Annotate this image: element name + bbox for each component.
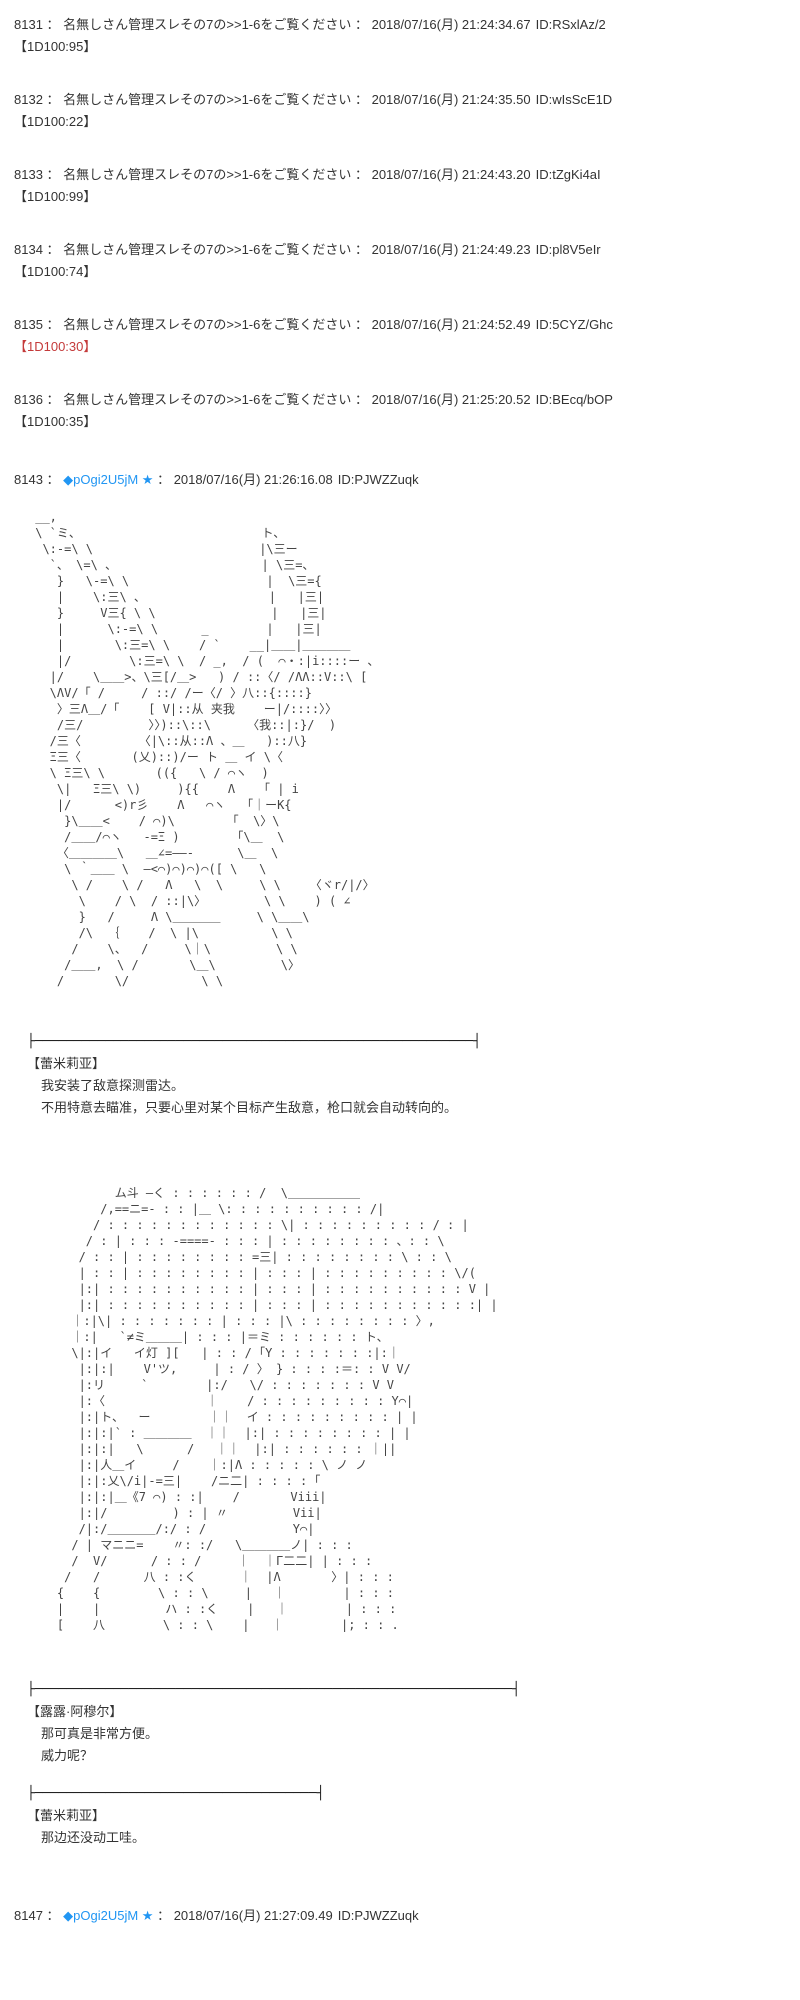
post-date: 2018/07/16(月) 21:26:16.08 (174, 472, 333, 487)
dice-roll: 【1D100:95】 (14, 36, 790, 58)
separator: ： (43, 1908, 63, 1923)
post-number: 8143 (14, 472, 43, 487)
post-8143: 8143 ： ◆pOgi2U5jM ★ ： 2018/07/16(月) 21:2… (14, 469, 790, 491)
poster-name: 名無しさん管理スレその7の>>1-6をご覧ください (63, 17, 351, 32)
poster-name: 名無しさん管理スレその7の>>1-6をご覧ください (63, 392, 351, 407)
separator: ： (43, 167, 63, 182)
post-id: ID:5CYZ/Ghc (536, 317, 613, 332)
post-date: 2018/07/16(月) 21:27:09.49 (174, 1908, 333, 1923)
post-8136: 8136 ： 名無しさん管理スレその7の>>1-6をご覧ください ： 2018/… (14, 389, 790, 433)
post-number: 8136 (14, 392, 43, 407)
separator: ： (351, 317, 371, 332)
post-id: ID:BEcq/bOP (536, 392, 613, 407)
post-8133: 8133 ： 名無しさん管理スレその7の>>1-6をご覧ください ： 2018/… (14, 164, 790, 208)
post-date: 2018/07/16(月) 21:24:43.20 (372, 167, 531, 182)
post-date: 2018/07/16(月) 21:24:49.23 (372, 242, 531, 257)
post-number: 8135 (14, 317, 43, 332)
post-id: ID:PJWZZuqk (338, 472, 419, 487)
post-date: 2018/07/16(月) 21:24:34.67 (372, 17, 531, 32)
tripcode[interactable]: ◆pOgi2U5jM ★ (63, 1908, 153, 1923)
post-date: 2018/07/16(月) 21:25:20.52 (372, 392, 531, 407)
separator: ： (351, 17, 371, 32)
dialogue-separator: ├───────────────────────────────────────… (14, 1031, 790, 1053)
separator: ： (43, 17, 63, 32)
post-8147: 8147 ： ◆pOgi2U5jM ★ ： 2018/07/16(月) 21:2… (14, 1905, 790, 1927)
separator: ： (351, 392, 371, 407)
separator: ： (351, 167, 371, 182)
ascii-art-2: ム斗 ―く : : : : : : / \＿＿＿＿＿＿ /,==ニ=- : : … (28, 1185, 790, 1665)
dialogue-line: 不用特意去瞄准，只要心里对某个目标产生敌意，枪口就会自动转向的。 (27, 1097, 790, 1119)
post-header: 8132 ： 名無しさん管理スレその7の>>1-6をご覧ください ： 2018/… (14, 89, 790, 111)
dice-roll: 【1D100:22】 (14, 111, 790, 133)
dialogue-line: 我安装了敌意探测雷达。 (27, 1075, 790, 1097)
separator: ： (43, 472, 63, 487)
poster-name: 名無しさん管理スレその7の>>1-6をご覧ください (63, 242, 351, 257)
dice-roll: 【1D100:74】 (14, 261, 790, 283)
post-id: ID:pl8V5eIr (536, 242, 601, 257)
speaker-name: 【露露·阿穆尔】 (27, 1701, 790, 1723)
post-id: ID:PJWZZuqk (338, 1908, 419, 1923)
separator: ： (351, 92, 371, 107)
tripcode[interactable]: ◆pOgi2U5jM ★ (63, 472, 153, 487)
poster-name: 名無しさん管理スレその7の>>1-6をご覧ください (63, 167, 351, 182)
dialogue-block-2: 【露露·阿穆尔】 那可真是非常方便。 威力呢？ (14, 1701, 790, 1767)
post-id: ID:tZgKi4aI (536, 167, 601, 182)
dialogue-block-3: 【蕾米莉亚】 那边还没动工哇。 (14, 1805, 790, 1849)
post-header: 8147 ： ◆pOgi2U5jM ★ ： 2018/07/16(月) 21:2… (14, 1905, 790, 1927)
post-number: 8131 (14, 17, 43, 32)
separator: ： (43, 92, 63, 107)
post-header: 8133 ： 名無しさん管理スレその7の>>1-6をご覧ください ： 2018/… (14, 164, 790, 186)
post-date: 2018/07/16(月) 21:24:35.50 (372, 92, 531, 107)
post-number: 8132 (14, 92, 43, 107)
speaker-name: 【蕾米莉亚】 (27, 1805, 790, 1827)
dice-roll: 【1D100:35】 (14, 411, 790, 433)
dice-roll-red: 【1D100:30】 (14, 336, 790, 358)
ascii-art-1: __, \ `ミ、 ト、 \:-=\ \ |\三ー `、 \=\ 、 | \三=… (28, 509, 790, 1005)
poster-name: 名無しさん管理スレその7の>>1-6をご覧ください (63, 317, 351, 332)
post-8131: 8131 ： 名無しさん管理スレその7の>>1-6をご覧ください ： 2018/… (14, 14, 790, 58)
thread-page: 8131 ： 名無しさん管理スレその7の>>1-6をご覧ください ： 2018/… (0, 0, 800, 1927)
dialogue-separator: ├───────────────────────────────────────… (14, 1679, 790, 1701)
separator: ： (43, 392, 63, 407)
post-header: 8135 ： 名無しさん管理スレその7の>>1-6をご覧ください ： 2018/… (14, 314, 790, 336)
separator: ： (43, 242, 63, 257)
post-date: 2018/07/16(月) 21:24:52.49 (372, 317, 531, 332)
post-id: ID:wIsScE1D (536, 92, 613, 107)
post-number: 8147 (14, 1908, 43, 1923)
dialogue-separator: ├────────────────────────────────────┤ (14, 1783, 790, 1805)
post-header: 8136 ： 名無しさん管理スレその7の>>1-6をご覧ください ： 2018/… (14, 389, 790, 411)
separator: ： (351, 242, 371, 257)
dialogue-line: 威力呢？ (27, 1745, 790, 1767)
post-id: ID:RSxlAz/2 (536, 17, 606, 32)
post-number: 8133 (14, 167, 43, 182)
post-8134: 8134 ： 名無しさん管理スレその7の>>1-6をご覧ください ： 2018/… (14, 239, 790, 283)
post-8132: 8132 ： 名無しさん管理スレその7の>>1-6をご覧ください ： 2018/… (14, 89, 790, 133)
post-header: 8143 ： ◆pOgi2U5jM ★ ： 2018/07/16(月) 21:2… (14, 469, 790, 491)
post-header: 8134 ： 名無しさん管理スレその7の>>1-6をご覧ください ： 2018/… (14, 239, 790, 261)
dice-roll: 【1D100:99】 (14, 186, 790, 208)
poster-name: 名無しさん管理スレその7の>>1-6をご覧ください (63, 92, 351, 107)
speaker-name: 【蕾米莉亚】 (27, 1053, 790, 1075)
separator: ： (153, 1908, 173, 1923)
separator: ： (153, 472, 173, 487)
dialogue-line: 那边还没动工哇。 (27, 1827, 790, 1849)
separator: ： (43, 317, 63, 332)
dialogue-line: 那可真是非常方便。 (27, 1723, 790, 1745)
post-8135: 8135 ： 名無しさん管理スレその7の>>1-6をご覧ください ： 2018/… (14, 314, 790, 358)
post-header: 8131 ： 名無しさん管理スレその7の>>1-6をご覧ください ： 2018/… (14, 14, 790, 36)
post-number: 8134 (14, 242, 43, 257)
dialogue-block-1: 【蕾米莉亚】 我安装了敌意探测雷达。 不用特意去瞄准，只要心里对某个目标产生敌意… (14, 1053, 790, 1119)
